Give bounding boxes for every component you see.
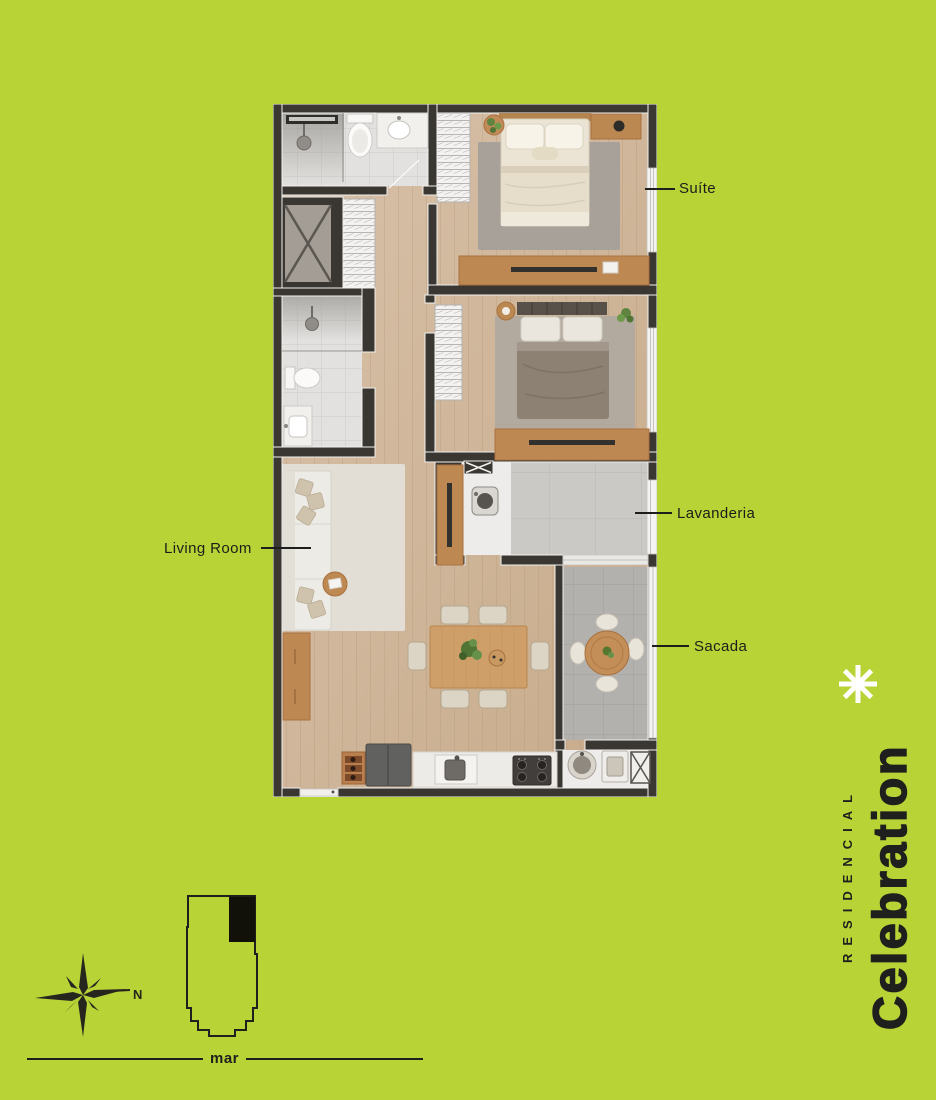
building-footprint-icon [183,892,263,1042]
hall-closet [343,199,375,291]
shower-head [297,136,311,150]
living-room-leader-line [261,547,311,549]
table-tray [489,650,505,666]
sink-2 [289,416,307,437]
living-room-label: Living Room [164,540,252,557]
sea-line-right [246,1058,423,1060]
bedroom2-closet [435,305,462,400]
bed2-duvet [517,342,609,419]
sea-line-left [27,1058,203,1060]
toilet2-bowl [294,368,320,388]
sink [388,121,410,139]
dining-sideboard [283,633,310,720]
laundry-tile-floor [511,462,648,555]
shower-head-2 [306,318,319,331]
lavanderia-leader-line [635,512,672,514]
suite-closet [437,113,470,202]
lavanderia-label: Lavanderia [677,505,755,522]
sacada-leader-line [652,645,689,647]
entry-door-handle [332,791,335,794]
living-tv [447,483,452,547]
unit-highlight [229,897,255,942]
brand-name: Celebration [866,744,913,1030]
asterisk-star-icon [836,662,880,706]
brand-residencial: RESIDENCIAL [841,787,854,963]
north-label: N [133,987,142,1002]
sacada-label: Sacada [694,638,747,655]
compass-rose-icon [28,940,148,1050]
bathroom2-shower-area [282,295,362,341]
suite-tv [511,267,597,272]
suite-window [647,168,657,252]
poster-canvas: Suíte Living Room Lavanderia Sacada RESI… [0,0,936,1100]
kitchen-sink [445,760,465,780]
suite-label: Suíte [679,180,716,197]
service-fixtures [568,751,650,783]
sea-label: mar [203,1050,246,1067]
toilet-tank [347,114,373,123]
suite-leader-line [645,188,675,190]
bed2-tv [529,440,615,445]
floor-plan-illustration [273,104,657,797]
bedroom2-window [647,328,657,432]
laundry-window [647,480,657,554]
